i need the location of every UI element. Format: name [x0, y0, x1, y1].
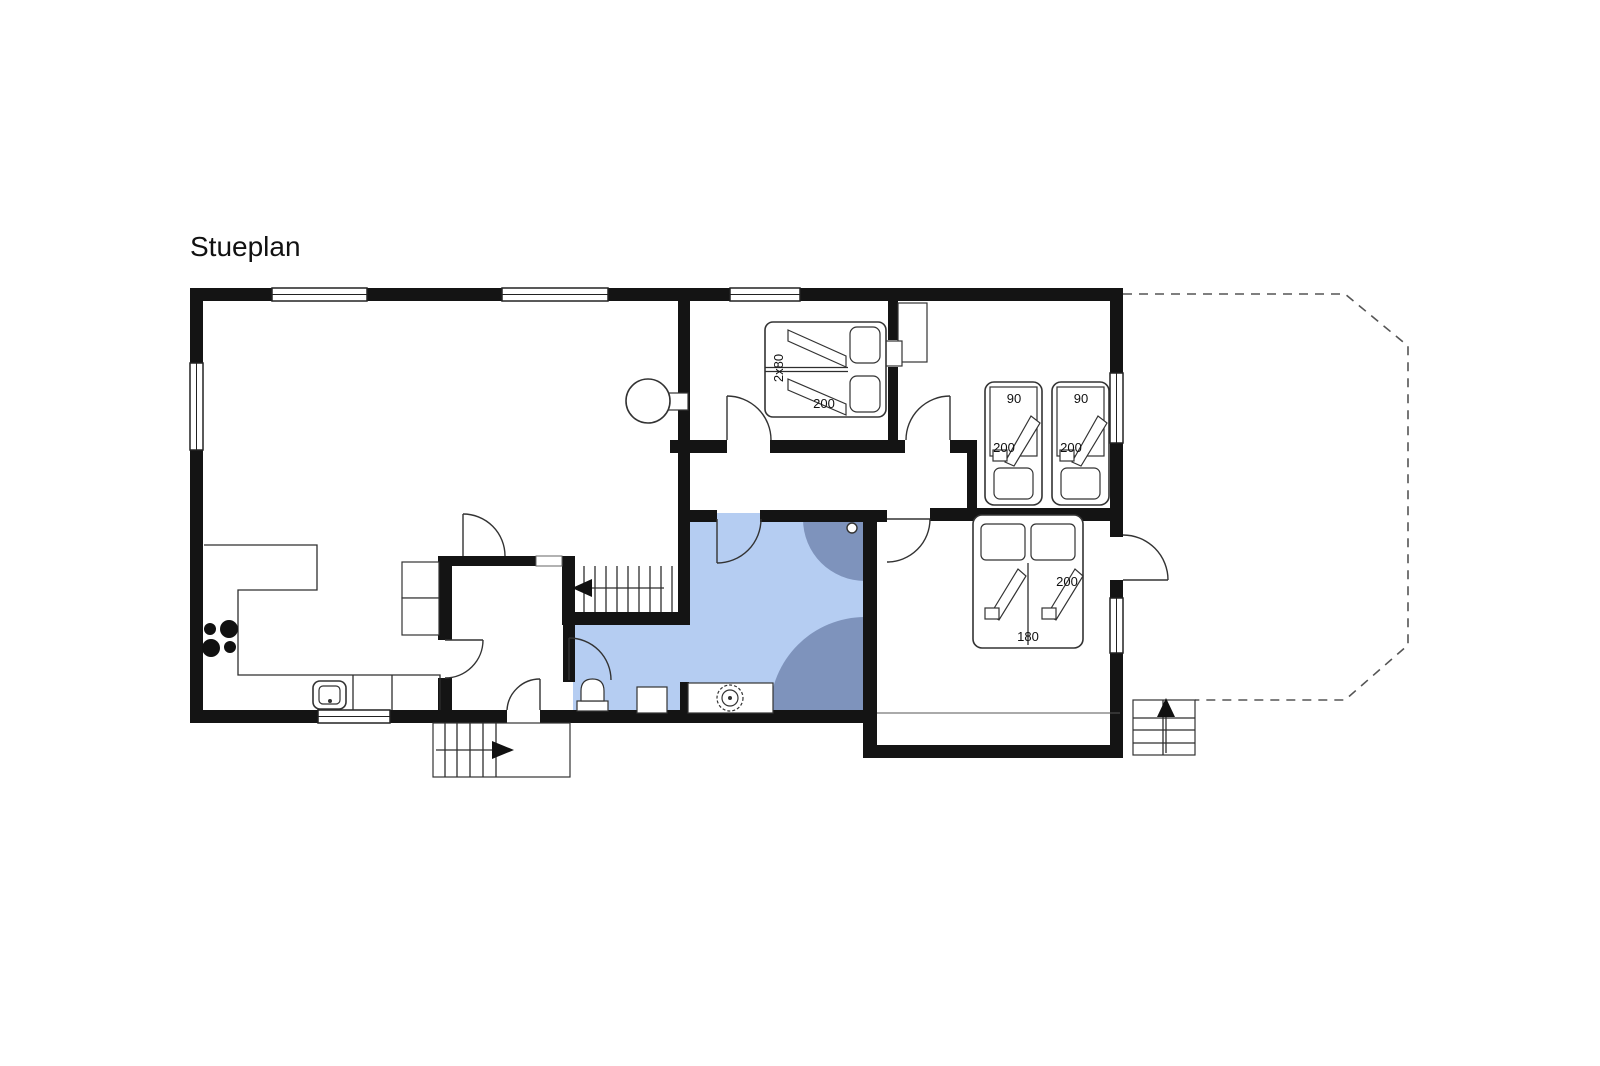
window-right-bedroom3 [1110, 598, 1123, 653]
door-hall-living [463, 514, 505, 556]
bed-double-2x80: 2x80 200 [765, 322, 886, 417]
floorplan-canvas: Stueplan [0, 0, 1600, 1066]
bed-single-right: 90 200 [1052, 382, 1109, 505]
door-bedroom2 [906, 396, 950, 440]
bed-width-label: 90 [1074, 391, 1088, 406]
door-entry [507, 679, 540, 710]
terrace-dashed-outline [1123, 294, 1408, 700]
bed-double-180: 200 180 [973, 515, 1083, 648]
window-right-bedroom2 [1110, 373, 1123, 443]
washbasin-cabinet [637, 687, 667, 713]
stove-icon [202, 620, 238, 657]
pillow [850, 327, 880, 363]
kitchen-sink-icon [313, 681, 346, 709]
window-top-3 [730, 288, 800, 301]
wardrobe [402, 562, 439, 635]
page-title: Stueplan [190, 231, 301, 262]
pillow [981, 524, 1025, 560]
bed-width-label: 180 [1017, 629, 1039, 644]
bed-length-label: 200 [813, 396, 835, 411]
entry-stairs [433, 723, 570, 777]
bed-width-label: 2x80 [771, 354, 786, 382]
pillow [1031, 524, 1075, 560]
pillow [850, 376, 880, 412]
pillow [994, 468, 1033, 499]
door-kitchen-hall [445, 640, 483, 678]
entry-door-gap [507, 710, 540, 723]
terrace-stairs [1133, 698, 1195, 755]
terrace-door-gap [1110, 537, 1123, 580]
bed-single-left: 90 200 [985, 382, 1042, 505]
window-bottom [318, 710, 390, 723]
stair-niche [536, 556, 562, 566]
door-terrace [1123, 535, 1168, 580]
bed-length-label: 200 [1060, 440, 1082, 455]
interior-stairs [572, 566, 672, 612]
shower-head-icon [847, 523, 857, 533]
window-left [190, 363, 203, 450]
bathroom-counter [688, 683, 773, 713]
floorplan-page: Stueplan [0, 0, 1600, 1066]
window-top-2 [502, 288, 608, 301]
bed-length-label: 200 [993, 440, 1015, 455]
pillow [1061, 468, 1100, 499]
door-bedroom3 [887, 519, 930, 562]
bed-length-label: 200 [1056, 574, 1078, 589]
bed-width-label: 90 [1007, 391, 1021, 406]
window-top-1 [272, 288, 367, 301]
